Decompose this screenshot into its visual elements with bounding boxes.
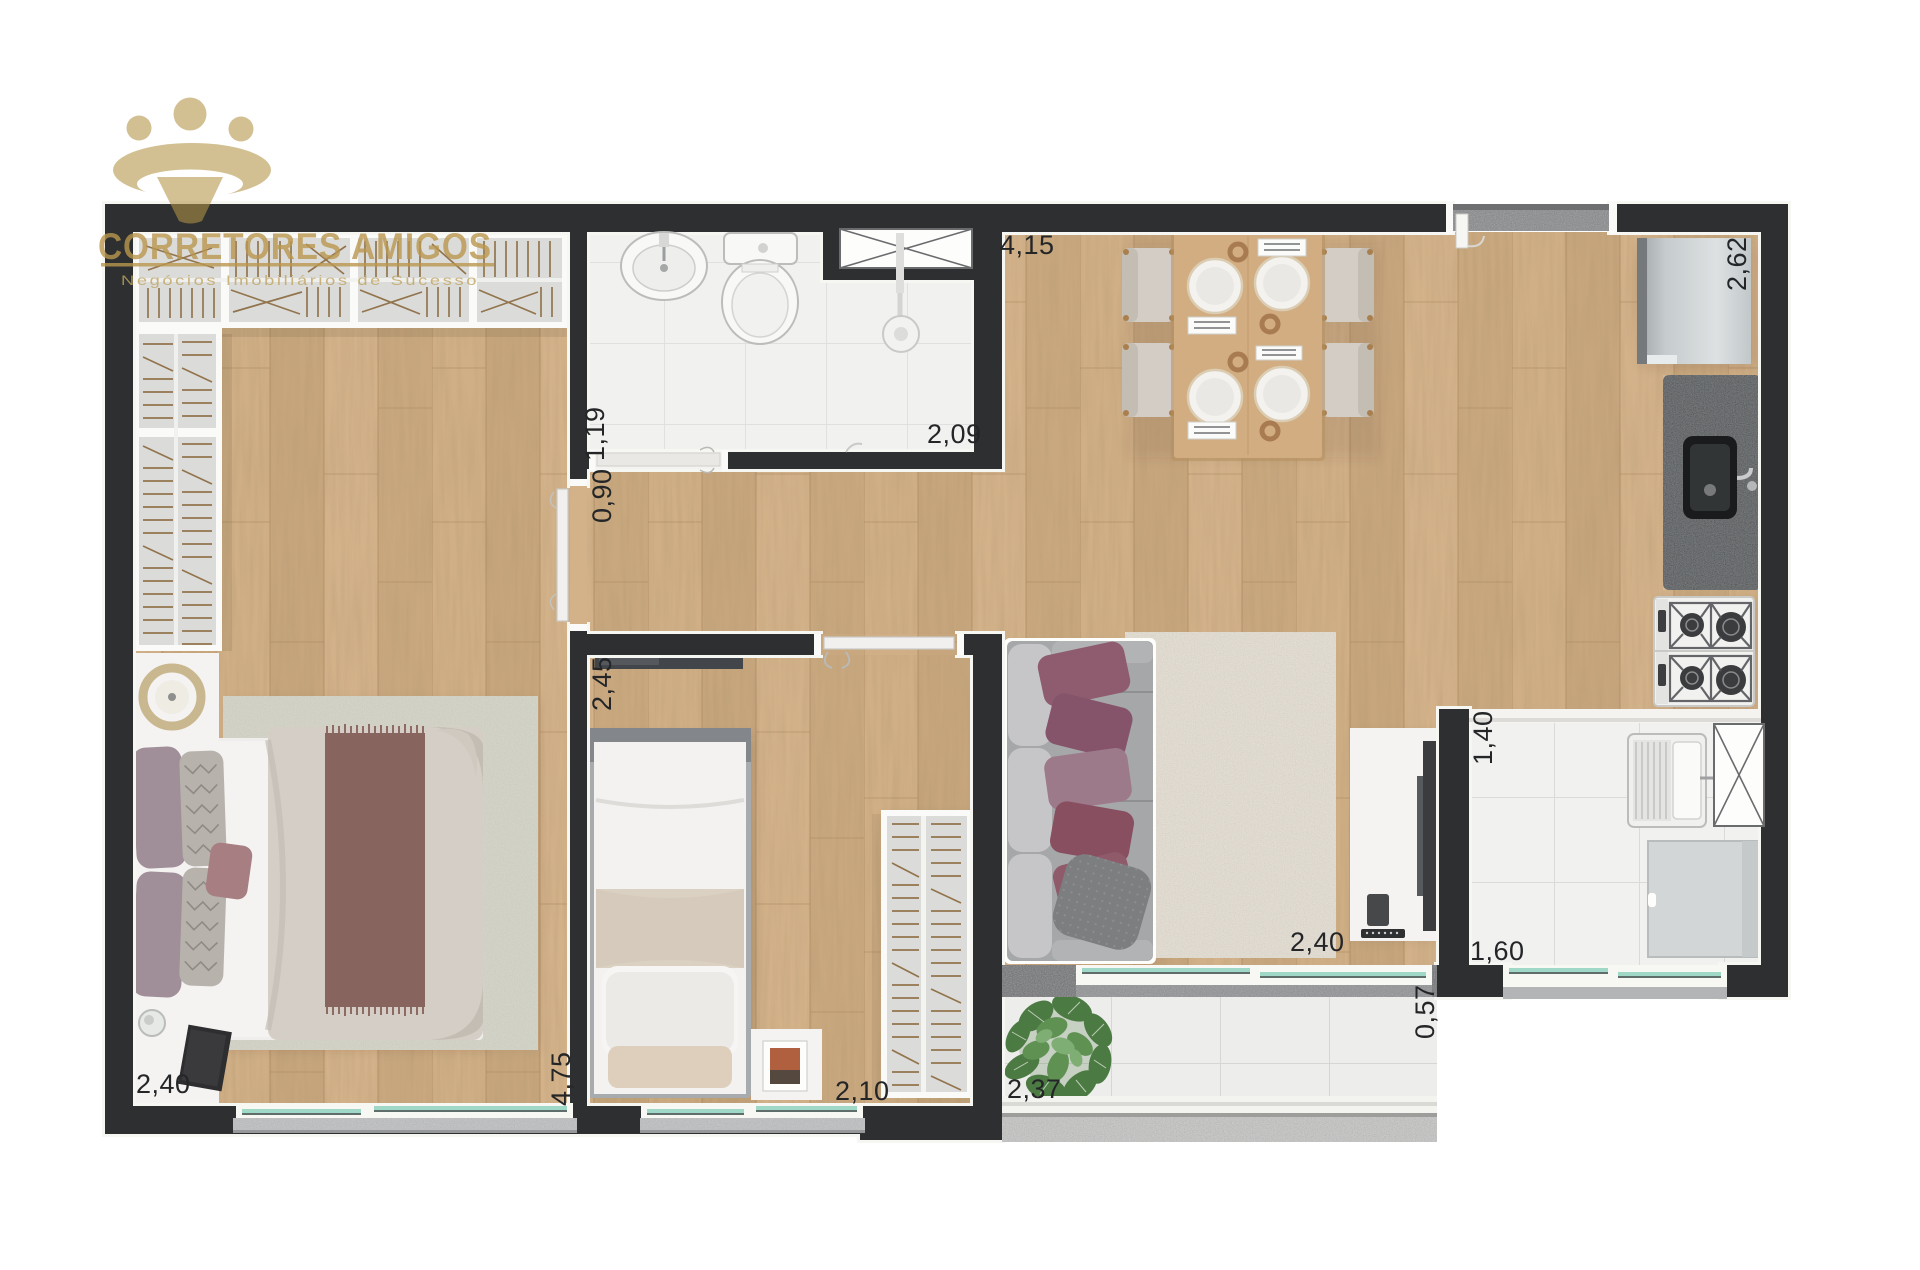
svg-text:2,09: 2,09 xyxy=(927,419,982,449)
svg-text:1,60: 1,60 xyxy=(1470,936,1525,966)
svg-text:4,75: 4,75 xyxy=(546,1051,576,1106)
svg-text:Negócios Imobiliários de Suces: Negócios Imobiliários de Sucesso xyxy=(121,272,479,288)
svg-text:CORRETORES AMIGOS: CORRETORES AMIGOS xyxy=(98,226,492,267)
svg-text:2,40: 2,40 xyxy=(1290,927,1345,957)
svg-text:4,15: 4,15 xyxy=(1000,230,1055,260)
svg-text:0,57: 0,57 xyxy=(1410,984,1440,1039)
svg-text:2,40: 2,40 xyxy=(136,1069,191,1099)
svg-text:2,62: 2,62 xyxy=(1722,236,1752,291)
svg-text:2,45: 2,45 xyxy=(587,656,617,711)
svg-text:0,90: 0,90 xyxy=(587,468,617,523)
svg-text:1,40: 1,40 xyxy=(1468,710,1498,765)
svg-text:2,37: 2,37 xyxy=(1007,1074,1062,1104)
svg-text:1,19: 1,19 xyxy=(580,406,610,461)
svg-text:2,10: 2,10 xyxy=(835,1076,890,1106)
